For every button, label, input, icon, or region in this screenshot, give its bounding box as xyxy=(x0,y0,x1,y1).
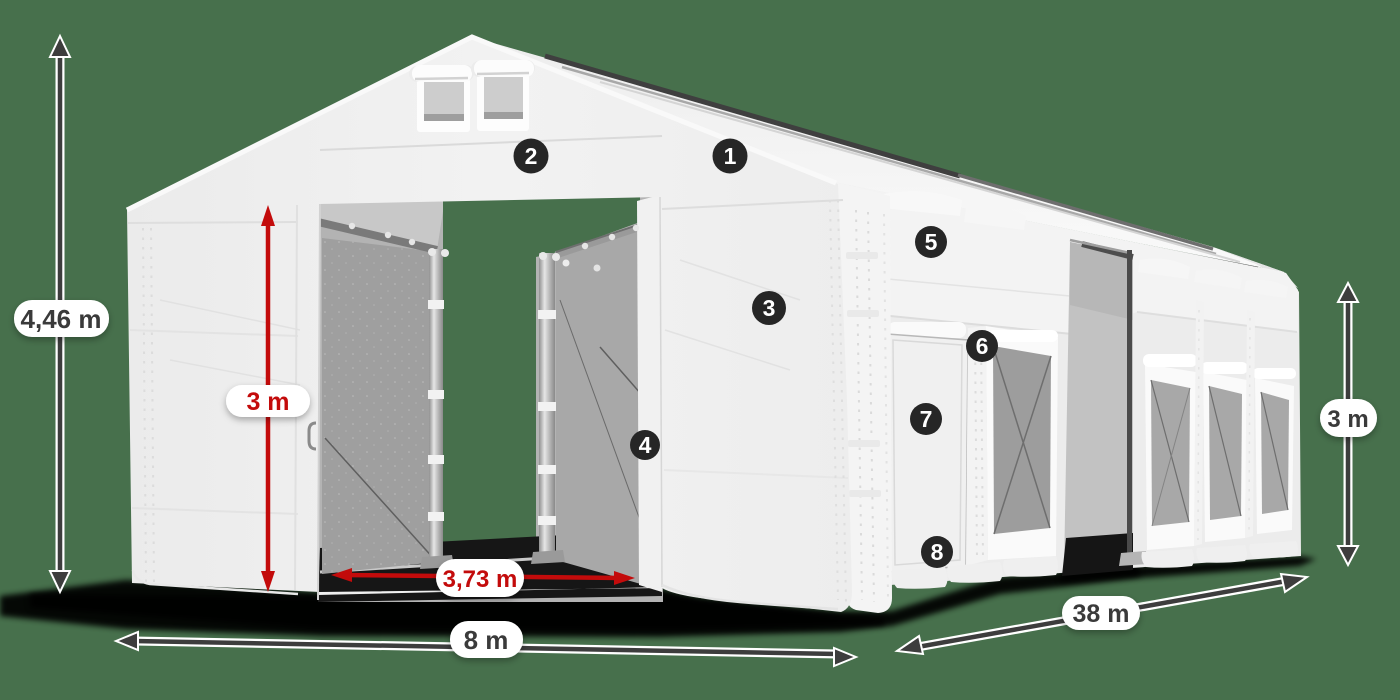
svg-text:8: 8 xyxy=(931,539,944,565)
svg-text:3 m: 3 m xyxy=(1327,406,1368,433)
svg-text:4,46 m: 4,46 m xyxy=(21,304,102,334)
svg-text:6: 6 xyxy=(976,333,989,359)
svg-text:1: 1 xyxy=(724,143,737,169)
svg-text:2: 2 xyxy=(525,143,538,169)
svg-text:3,73 m: 3,73 m xyxy=(443,566,518,593)
svg-text:8 m: 8 m xyxy=(464,625,509,655)
svg-text:3 m: 3 m xyxy=(246,388,289,416)
svg-text:4: 4 xyxy=(639,432,652,458)
svg-text:7: 7 xyxy=(920,406,933,432)
svg-text:38 m: 38 m xyxy=(1073,600,1130,628)
svg-text:3: 3 xyxy=(763,295,776,321)
svg-text:5: 5 xyxy=(925,229,938,255)
